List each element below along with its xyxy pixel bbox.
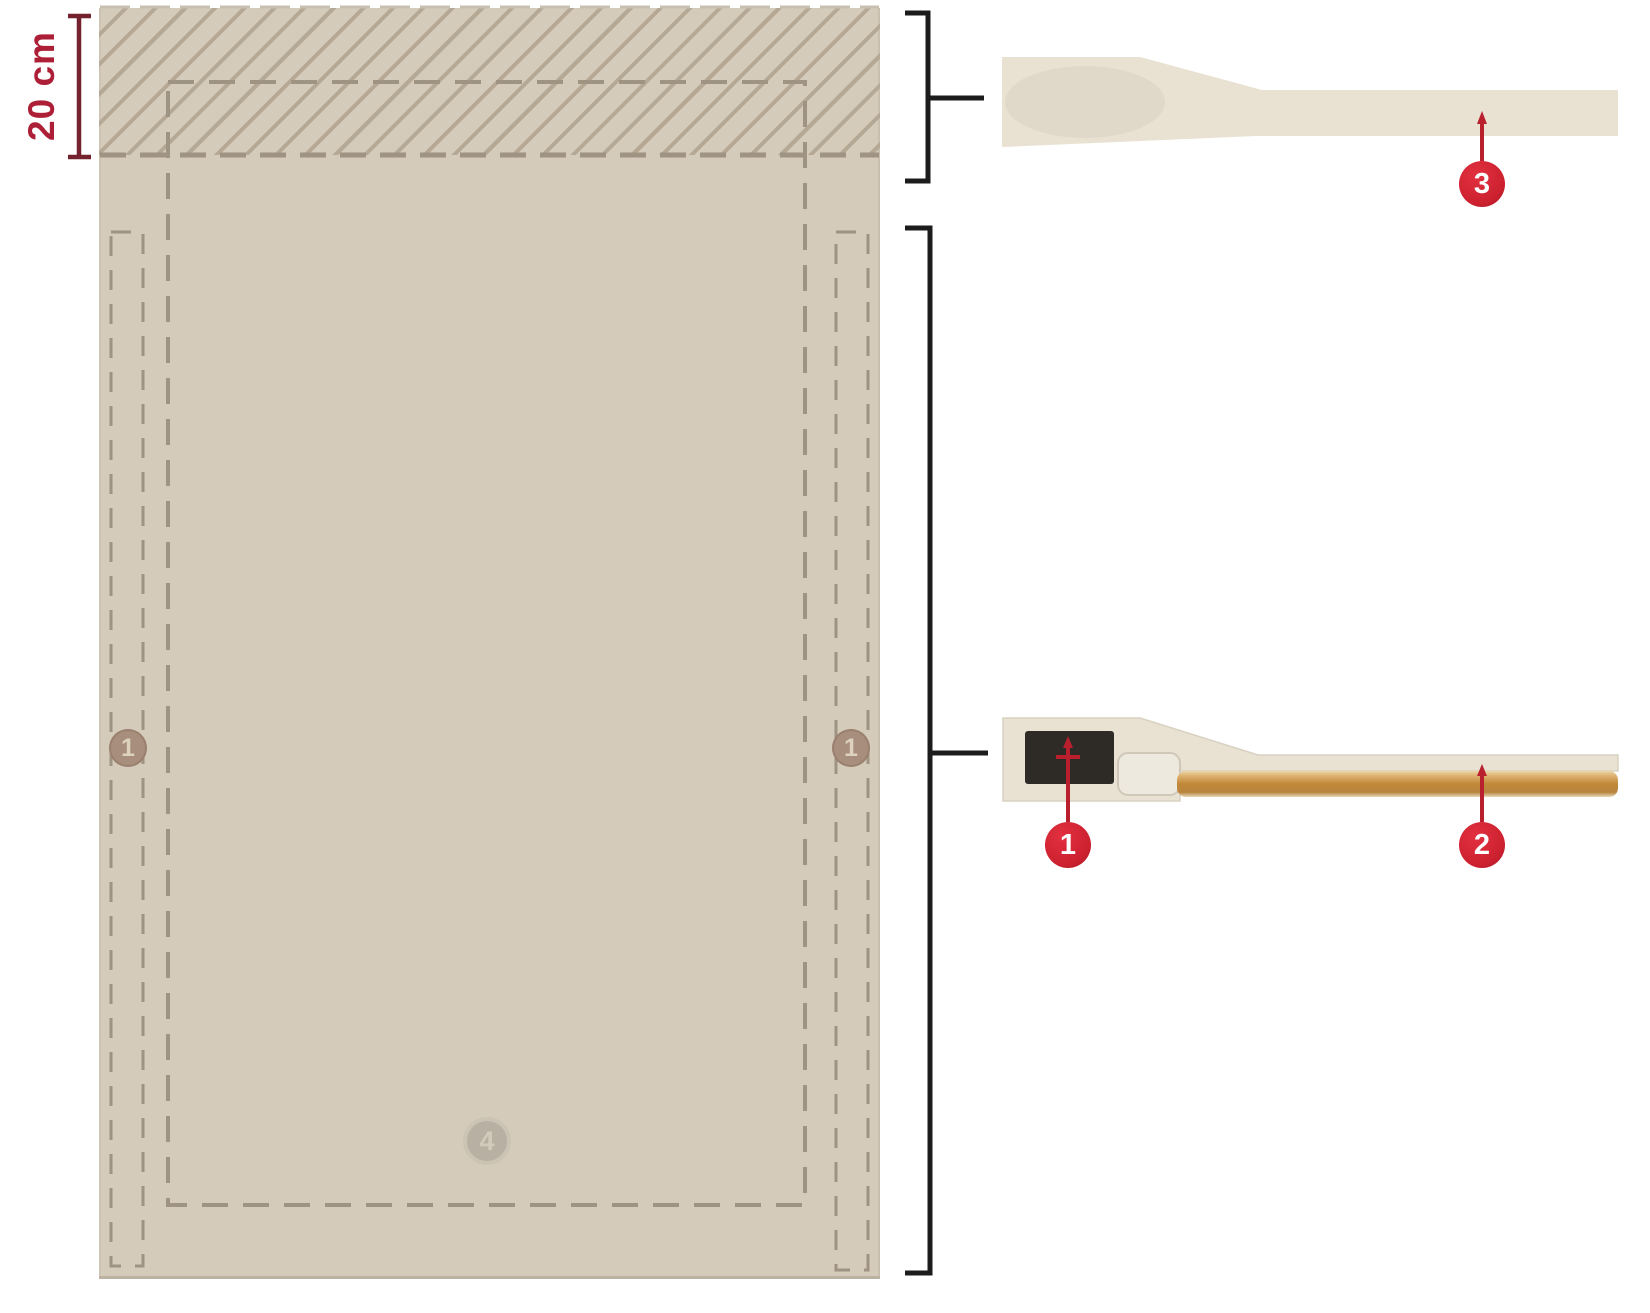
top-cross-section bbox=[1002, 57, 1618, 161]
callout-badge-3: 3 bbox=[1459, 161, 1505, 207]
sensor-pocket-outline bbox=[1118, 753, 1180, 795]
dimension-label: 20 cm bbox=[22, 26, 62, 146]
inner-dashed-outline bbox=[168, 82, 805, 1205]
top-section-bracket bbox=[905, 13, 984, 181]
callout-badge-2-label: 2 bbox=[1474, 829, 1490, 862]
bottom-cross-section bbox=[1003, 718, 1618, 822]
plan-marker-4-label: 4 bbox=[479, 1126, 494, 1157]
plan-marker-right-1-label: 1 bbox=[844, 734, 858, 763]
plan-marker-left-1-label: 1 bbox=[121, 734, 135, 763]
dimension-line-20cm bbox=[68, 16, 91, 157]
plan-marker-right-1: 1 bbox=[832, 729, 870, 767]
callout-badge-2: 2 bbox=[1459, 822, 1505, 868]
callout-badge-3-label: 3 bbox=[1474, 168, 1490, 201]
body-section-bracket bbox=[905, 228, 988, 1273]
installation-diagram: 20 cm 1 1 4 1 2 3 bbox=[0, 0, 1650, 1313]
plan-marker-left-1: 1 bbox=[109, 729, 147, 767]
heating-tube bbox=[1177, 771, 1618, 797]
top-section-shading bbox=[1005, 66, 1165, 138]
diagram-linework bbox=[0, 0, 1650, 1313]
plan-marker-4: 4 bbox=[463, 1117, 511, 1165]
callout-badge-1-label: 1 bbox=[1060, 829, 1076, 862]
callout-badge-1: 1 bbox=[1045, 822, 1091, 868]
